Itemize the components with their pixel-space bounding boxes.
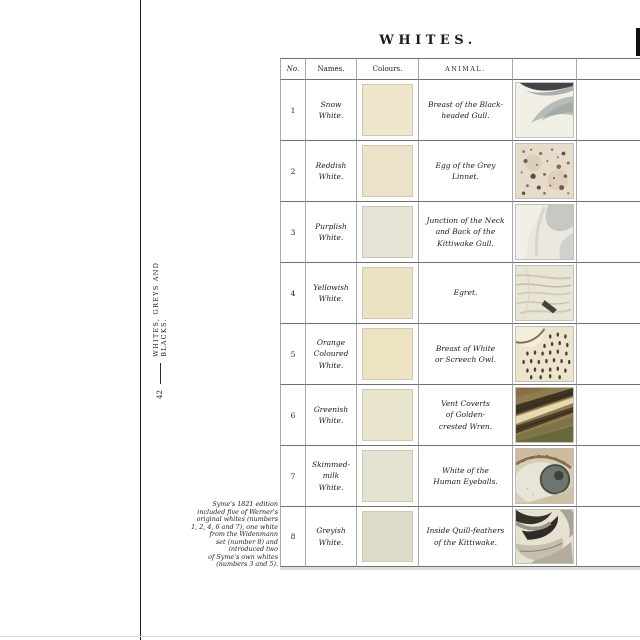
colour-swatch xyxy=(362,328,413,380)
colour-table: No. Names. Colours. ANIMAL. 1 Snow White… xyxy=(280,58,640,567)
colour-swatch-cell xyxy=(356,140,418,201)
header-image-column xyxy=(512,58,576,79)
animal-description: Egret. xyxy=(418,262,512,323)
animal-description: Breast of the Black- headed Gull. xyxy=(418,79,512,140)
wren-image xyxy=(515,387,574,443)
section-sidebar-label: 42 WHITES, GREYS AND BLACKS. xyxy=(153,225,167,399)
page-number: 42 xyxy=(156,390,164,399)
page-title: WHITES. xyxy=(280,33,576,48)
egret-image xyxy=(515,265,574,321)
sidebar-rule xyxy=(160,363,161,384)
header-colours: Colours. xyxy=(356,58,418,79)
animal-description: White of the Human Eyeballs. xyxy=(418,445,512,506)
animal-description: Inside Quill-feathers of the Kittiwake. xyxy=(418,506,512,567)
colour-swatch xyxy=(362,450,413,502)
row-number: 4 xyxy=(280,262,305,323)
row-number: 2 xyxy=(280,140,305,201)
animal-image-cell xyxy=(512,140,576,201)
animal-description: Junction of the Neck and Back of the Kit… xyxy=(418,201,512,262)
colour-name: Reddish White. xyxy=(305,140,356,201)
colour-swatch xyxy=(362,84,413,136)
owl-breast-image xyxy=(515,326,574,382)
row-number: 6 xyxy=(280,384,305,445)
animal-image-cell xyxy=(512,201,576,262)
page-bottom-edge xyxy=(0,636,640,637)
colour-name: Snow White. xyxy=(305,79,356,140)
gull-breast-image xyxy=(515,82,574,138)
kittiwake-neck-image xyxy=(515,204,574,260)
colour-swatch xyxy=(362,206,413,258)
colour-name: Greenish White. xyxy=(305,384,356,445)
quill-feathers-image xyxy=(515,509,574,564)
book-page: WHITES. 42 WHITES, GREYS AND BLACKS. Sym… xyxy=(0,0,640,640)
colour-name: Greyish White. xyxy=(305,506,356,567)
row-number: 3 xyxy=(280,201,305,262)
header-animal: ANIMAL. xyxy=(418,58,512,79)
header-no: No. xyxy=(280,58,305,79)
empty-cell xyxy=(576,445,640,506)
animal-image-cell xyxy=(512,445,576,506)
header-names: Names. xyxy=(305,58,356,79)
animal-image-cell xyxy=(512,506,576,567)
empty-cell xyxy=(576,79,640,140)
page-edge-tab xyxy=(636,28,640,56)
colour-name: Orange Coloured White. xyxy=(305,323,356,384)
margin-rule xyxy=(140,0,141,640)
colour-name: Purplish White. xyxy=(305,201,356,262)
colour-swatch-cell xyxy=(356,262,418,323)
colour-swatch xyxy=(362,511,413,562)
colour-name: Skimmed- milk White. xyxy=(305,445,356,506)
animal-description: Egg of the Grey Linnet. xyxy=(418,140,512,201)
colour-swatch-cell xyxy=(356,201,418,262)
colour-name: Yellowish White. xyxy=(305,262,356,323)
animal-image-cell xyxy=(512,323,576,384)
colour-swatch xyxy=(362,267,413,319)
linnet-egg-image xyxy=(515,143,574,199)
animal-image-cell xyxy=(512,262,576,323)
empty-cell xyxy=(576,384,640,445)
header-cropped-column xyxy=(576,58,640,79)
animal-image-cell xyxy=(512,384,576,445)
row-number: 5 xyxy=(280,323,305,384)
colour-swatch-cell xyxy=(356,323,418,384)
empty-cell xyxy=(576,201,640,262)
empty-cell xyxy=(576,262,640,323)
row-number: 1 xyxy=(280,79,305,140)
footnote: Syme's 1821 edition included five of Wer… xyxy=(160,501,278,569)
colour-swatch-cell xyxy=(356,445,418,506)
colour-swatch xyxy=(362,145,413,197)
row-number: 7 xyxy=(280,445,305,506)
human-eye-image xyxy=(515,448,574,504)
empty-cell xyxy=(576,323,640,384)
empty-cell xyxy=(576,140,640,201)
row-number: 8 xyxy=(280,506,305,567)
colour-swatch-cell xyxy=(356,79,418,140)
section-title: WHITES, GREYS AND BLACKS. xyxy=(152,225,168,357)
animal-description: Breast of White or Screech Owl. xyxy=(418,323,512,384)
colour-swatch-cell xyxy=(356,384,418,445)
empty-cell xyxy=(576,506,640,567)
colour-swatch xyxy=(362,389,413,441)
animal-image-cell xyxy=(512,79,576,140)
colour-swatch-cell xyxy=(356,506,418,567)
animal-description: Vent Coverts of Golden- crested Wren. xyxy=(418,384,512,445)
